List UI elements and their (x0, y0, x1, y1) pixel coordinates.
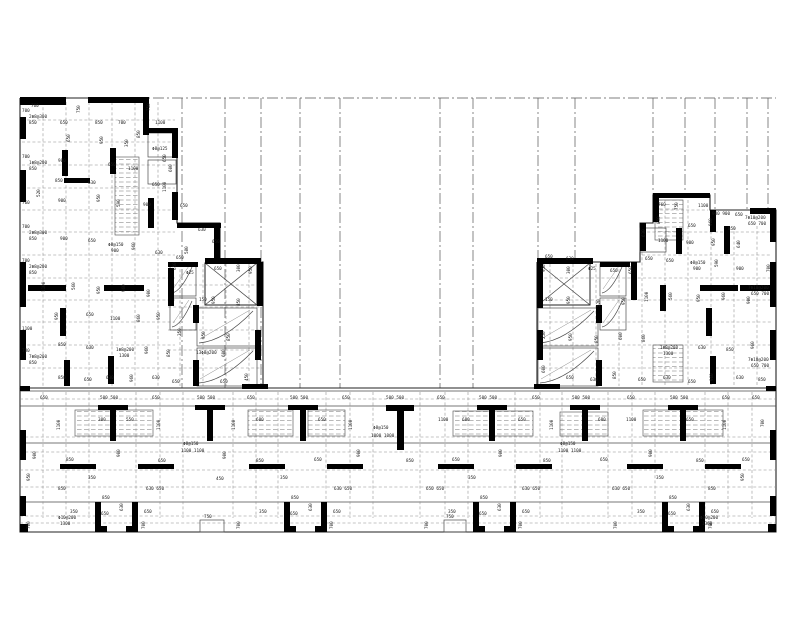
dimension-label: 650 (144, 509, 152, 515)
dimension-label: 630 (497, 503, 503, 511)
dimension-label: 1100 (658, 238, 669, 244)
dimension-label: 900 (648, 449, 654, 457)
wall-segment (20, 386, 30, 391)
dimension-label: 960 (750, 341, 756, 349)
wall-segment (300, 405, 306, 441)
dimension-label: 900 (222, 451, 228, 459)
core-layer (148, 133, 666, 532)
dimension-label: 650 (638, 377, 646, 383)
dimension-label: 1100 (698, 203, 709, 209)
dimension-label: 590 (116, 199, 122, 207)
dimension-label: Φ8@125 (152, 146, 168, 152)
dimension-label: 630 650 (522, 486, 541, 492)
dimension-label: 860 (136, 314, 142, 322)
dimension-label: 1100 (41, 281, 47, 292)
dimension-label: 680 (256, 417, 264, 423)
wall-segment (504, 526, 516, 532)
dimension-label: 590 (714, 259, 720, 267)
dimension-label: 13Φ8@200 (196, 350, 217, 356)
dimension-label: 850 (669, 495, 677, 501)
wall-segment (327, 464, 363, 469)
wall-segment (126, 526, 138, 532)
dimension-label: 1100 (722, 419, 728, 430)
dimension-label: 650 (180, 203, 188, 209)
wall-segment (489, 405, 495, 441)
floor-plan-canvas: 7607506508507007501100850650950350Φ8@125… (0, 0, 800, 640)
dimension-label: 350 (656, 475, 664, 481)
hatched-slab (248, 410, 293, 436)
dimension-label: 860 (641, 334, 647, 342)
dimension-label: 960 (721, 292, 727, 300)
dimension-label: 960 (144, 346, 150, 354)
dimension-label: 650 (152, 182, 160, 188)
dimension-label: 650 (600, 457, 608, 463)
wall-segment (516, 464, 552, 469)
dimension-label: 850 (29, 120, 37, 126)
wall-segment (770, 496, 776, 516)
dimension-label: 950 (26, 473, 32, 481)
dimension-label: 650 650 (426, 486, 445, 492)
wall-segment (680, 405, 686, 441)
dimension-label: 850 (726, 347, 734, 353)
wall-segment (88, 97, 146, 103)
wall-segment (438, 464, 474, 469)
dimension-label: 600 (168, 164, 174, 172)
wall-segment (20, 262, 26, 307)
dimension-label: 650 (88, 238, 96, 244)
dimension-label: 300 (98, 417, 106, 423)
dimension-label: 750 (446, 514, 454, 520)
dimension-label: 900 (356, 449, 362, 457)
dimension-label: 650 (566, 375, 574, 381)
dimension-label: 700 (236, 521, 242, 529)
wall-segment (255, 330, 261, 360)
wall-segment (770, 330, 776, 360)
wall-segment (768, 524, 776, 532)
dimension-label: 250 (541, 331, 547, 339)
dimension-label: 700 (329, 521, 335, 529)
dimension-label: 1Φ8@200 (116, 347, 135, 353)
dimension-label: 350 (259, 509, 267, 515)
dimension-label: 560 (71, 282, 77, 290)
dimension-label: 780 (22, 348, 30, 354)
dimension-label: 900 (686, 240, 694, 246)
dimension-label: 760 (31, 103, 39, 109)
dimension-label: 700 (760, 419, 766, 427)
dimension-label: 350 (637, 509, 645, 515)
dimension-label: 650 (735, 212, 743, 218)
dimension-label: 640 (736, 240, 742, 248)
dimension-label: 650 (711, 509, 719, 515)
dimension-label: 500 500 (290, 395, 309, 401)
dimension-label: 950 (740, 473, 746, 481)
dimension-label: 600 (618, 332, 624, 340)
dimension-label: 600 (541, 365, 547, 373)
stair-run-line (541, 350, 591, 379)
dimension-label: 950 (96, 194, 102, 202)
wall-segment (20, 330, 26, 360)
stair-run-line (540, 311, 594, 343)
dimension-label: 850 (166, 349, 172, 357)
dimension-label: 900 (58, 158, 66, 164)
wall-segment (662, 526, 674, 532)
dimension-label: 900 (146, 289, 152, 297)
dimension-label: 960 (121, 284, 127, 292)
dimension-label: 650 (86, 312, 94, 318)
dimension-label: 850 (406, 458, 414, 464)
dimension-label: 850 (29, 360, 37, 366)
dimension-label: 630 (308, 503, 314, 511)
dimension-label: 850 (656, 216, 662, 224)
dimension-label: 950 (201, 331, 207, 339)
wall-segment (676, 228, 682, 254)
dimension-label: 520 (596, 299, 602, 307)
dimension-label: 750 (674, 202, 680, 210)
dimension-label: 650 (172, 262, 178, 270)
wall-segment (60, 464, 96, 469)
dimension-label: 850 (29, 236, 37, 242)
dimension-label: 750 (146, 103, 152, 111)
wall-segment (64, 360, 70, 386)
dimension-label: 630 (698, 345, 706, 351)
dimension-label: 950 (211, 296, 217, 304)
dimension-label: 630 (119, 503, 125, 511)
dimension-label: 1100 (549, 419, 555, 430)
dimension-label: 650 700 (748, 221, 767, 227)
dimension-label: 900 (111, 248, 119, 254)
dimension-label: Φ25 (186, 270, 194, 276)
dimension-label: 700 (424, 521, 430, 529)
dimension-label: 680 (598, 417, 606, 423)
dimension-label: 350 (280, 475, 288, 481)
wall-segment (284, 526, 296, 532)
dimension-label: 630 (686, 503, 692, 511)
dimension-label: 650 (666, 258, 674, 264)
dimension-label: 900 900 (712, 211, 731, 217)
wall-segment (110, 148, 116, 174)
floor-plan-sheet: 7607506508507007501100850650950350Φ8@125… (0, 0, 800, 640)
dimension-label: 1100 (128, 166, 139, 172)
dimension-label: 1100 1100 (558, 448, 582, 454)
dimension-label: 350 (88, 475, 96, 481)
dimension-label: 960 (708, 218, 714, 226)
wall-segment (700, 285, 738, 291)
dimension-label: 630 650 (146, 486, 165, 492)
wall-segment (770, 214, 776, 242)
wall-segment (60, 308, 66, 336)
dimension-label: 1100 (231, 419, 237, 430)
dimension-label: 700 (22, 154, 30, 160)
wall-segment (172, 130, 178, 158)
wall-segment (257, 262, 263, 306)
stair-flight (538, 308, 598, 346)
dimension-label: 630 (566, 256, 574, 262)
dimension-label: 650 700 (751, 291, 770, 297)
dimension-label: 650 (172, 379, 180, 385)
dimension-label: 850 (708, 486, 716, 492)
dimension-label: 650 (290, 511, 298, 517)
dimension-label: 950 (568, 333, 574, 341)
dimension-label: 900 (746, 296, 752, 304)
dimension-label: 560 (668, 292, 674, 300)
dimension-label: 630 (155, 250, 163, 256)
dimension-label: 700 (766, 264, 772, 272)
dimension-label: 350 (124, 139, 130, 147)
dimension-label: 630 (590, 377, 598, 383)
wall-segment (64, 178, 90, 183)
dimension-label: 650 (152, 395, 160, 401)
wall-segment (20, 170, 26, 202)
dimension-label: 900 (60, 236, 68, 242)
wall-segment (249, 464, 285, 469)
dimension-label: 900 (736, 266, 744, 272)
wall-segment (473, 526, 485, 532)
dimension-label: 650 (437, 395, 445, 401)
dimension-label: 700 (22, 258, 30, 264)
dimension-label: 650 (333, 509, 341, 515)
dimension-label: 900 (58, 198, 66, 204)
dimension-label: 950 (99, 136, 105, 144)
dimension-label: 1100 (22, 326, 33, 332)
stair-outline (538, 308, 598, 346)
dimension-label: 1Φ8@200 (660, 345, 679, 351)
wall-segment (138, 464, 174, 469)
wall-segment (397, 405, 404, 450)
wall-segment (110, 405, 116, 441)
wall-segment (20, 496, 26, 516)
dimension-label: 650 (318, 417, 326, 423)
dimension-label: 900 (498, 449, 504, 457)
dimension-label: 650 (522, 509, 530, 515)
dimension-label: 500 500 (197, 395, 216, 401)
wall-segment (20, 97, 66, 105)
dimension-label: Φ8@150 (560, 441, 576, 447)
dimension-label: 650 (212, 239, 220, 245)
wall-segment (770, 430, 776, 460)
dimension-label: 850 (594, 335, 600, 343)
dimension-label: 500 500 (670, 395, 689, 401)
dimension-label: 850 (29, 270, 37, 276)
dimension-label: 650 (686, 417, 694, 423)
dimension-label: 650 (532, 395, 540, 401)
dimension-label: 650 (545, 254, 553, 260)
dimension-label: 650 (645, 256, 653, 262)
wall-segment (20, 430, 26, 460)
dimension-label: 1100 1100 (181, 448, 205, 454)
dimension-label: 650 (342, 395, 350, 401)
dimension-label: 850 (58, 486, 66, 492)
dimension-label: 630 (86, 345, 94, 351)
dimension-label: 900 (116, 449, 122, 457)
dimension-label: 960 (131, 242, 137, 250)
dimension-label: 650 (108, 162, 116, 168)
dimension-label: 650 (518, 417, 526, 423)
small-room-box (148, 133, 176, 157)
dimension-label: 900 (143, 202, 151, 208)
wall-segment (706, 308, 712, 336)
dimension-label: 650 (627, 395, 635, 401)
dimension-label: 850 (226, 333, 232, 341)
dimension-label: 1100 (162, 181, 168, 192)
dimension-label: 950 (54, 312, 60, 320)
small-room-box (200, 520, 224, 532)
wall-segment (193, 360, 199, 386)
dimension-label: 150 (545, 297, 553, 303)
dimension-label: 700 (22, 108, 30, 114)
dimension-label: 630 (198, 227, 206, 233)
dimension-label: 1Φ8@200 (29, 160, 48, 166)
dimension-label: 1100 (438, 417, 449, 423)
dimension-label: 500 500 (572, 395, 591, 401)
dimension-label: 650 (752, 395, 760, 401)
dimension-label: 630 650 (334, 486, 353, 492)
dimension-label: 550 (126, 417, 134, 423)
dimension-label: 700 (26, 521, 32, 529)
wall-segment (207, 405, 213, 441)
dimension-label: 7Φ10@200 (748, 285, 769, 291)
dimension-label: 950 (248, 266, 254, 274)
dimension-label: 950 (711, 238, 717, 246)
dimension-label: 250 (177, 328, 183, 336)
wall-segment (534, 384, 560, 389)
wall-segment (766, 386, 776, 391)
building-outline (20, 98, 263, 388)
dimension-label: 650 (66, 134, 72, 142)
dimension-label: Φ8@150 (108, 242, 124, 248)
dimension-label: 630 (88, 180, 96, 186)
dimension-label: 1100 (156, 419, 162, 430)
dimension-label: 630 650 (612, 486, 631, 492)
dimension-label: 1300 (702, 521, 713, 527)
dimension-label: 500 500 (100, 395, 119, 401)
dimension-label: 500 500 (479, 395, 498, 401)
small-room-box (444, 520, 466, 532)
dimension-label: 850 (696, 458, 704, 464)
dimension-label: 1100 (155, 120, 166, 126)
hatched-slab (308, 410, 345, 436)
dimension-label: 1300 (60, 521, 71, 527)
dimension-label: 850 (758, 377, 766, 383)
dimension-label: 650 700 (751, 363, 770, 369)
dimension-label: 650 (668, 511, 676, 517)
dimension-label: 650 (610, 268, 618, 274)
dimension-label: 850 (291, 495, 299, 501)
wall-segment (653, 193, 710, 198)
stair-run-line (541, 310, 591, 339)
dimension-label: 850 (136, 130, 142, 138)
dimension-label: 760 (22, 200, 30, 206)
dimension-label: 650 (162, 154, 168, 162)
dimension-label: 650 (314, 457, 322, 463)
dimension-label: 700 (141, 521, 147, 529)
dimension-label: 2Φ8@200 (29, 264, 48, 270)
dimension-label: 850 (480, 495, 488, 501)
dimension-label: 630 (663, 375, 671, 381)
dimension-label: 1100 (626, 417, 637, 423)
wall-segment (242, 384, 268, 389)
dimension-label: 7Φ10@200 (748, 357, 769, 363)
dimension-label: 1300 (663, 351, 674, 357)
wall-segment (168, 268, 174, 306)
dimension-label: 520 (36, 189, 42, 197)
dimension-label: 960 (129, 374, 135, 382)
dimension-label: 650 (722, 395, 730, 401)
dimension-label: 650 (60, 120, 68, 126)
dimension-label: 2Φ8@300 (29, 230, 48, 236)
dimension-label: 950 (541, 264, 547, 272)
dimension-label: 1100 (644, 291, 650, 302)
wall-segment (315, 526, 327, 532)
dimension-label: 650 (479, 511, 487, 517)
dimension-label: 650 (688, 379, 696, 385)
dimension-label: 950 (696, 294, 702, 302)
dimension-label: 1100 (110, 316, 121, 322)
wall-segment (193, 305, 199, 323)
dimension-label: 650 (220, 379, 228, 385)
dimension-label: 850 (543, 458, 551, 464)
wall-segment (750, 208, 776, 214)
dimension-label: 950 (566, 296, 572, 304)
dimension-label: 630 (152, 375, 160, 381)
wall-segment (205, 258, 261, 264)
dimension-label: 960 (709, 373, 715, 381)
dimension-label: 650 (40, 395, 48, 401)
dimension-label: 850 (55, 178, 63, 184)
dimension-label: Φ10@200 (700, 515, 719, 521)
dimension-label: Φ8@150 (183, 441, 199, 447)
dimension-label: 850 (102, 495, 110, 501)
wall-segment (705, 464, 741, 469)
dimension-label: 650 (452, 457, 460, 463)
dimension-label: 850 (58, 375, 66, 381)
dimension-label: 900 (32, 451, 38, 459)
dimension-label: 850 (58, 342, 66, 348)
dimension-label: 7Φ8@200 (29, 354, 48, 360)
dimension-label: Φ8@150 (690, 260, 706, 266)
dimension-label: 900 (693, 266, 701, 272)
dimension-label: 450 (216, 476, 224, 482)
dimension-label: 630 (736, 375, 744, 381)
dimension-label: 650 (628, 266, 634, 274)
dimension-label: 650 (101, 511, 109, 517)
dimension-label: 850 (236, 298, 242, 306)
wall-segment (582, 405, 588, 441)
dimension-label: 300 (566, 266, 572, 274)
dimension-label: 500 500 (386, 395, 405, 401)
dimension-label: 650 (84, 377, 92, 383)
dimension-label: 150 (199, 297, 207, 303)
dimension-label: 600 (221, 349, 227, 357)
dimension-label: 300 (236, 264, 242, 272)
dimension-label: 950 (621, 297, 627, 305)
dimension-label: 1100 (56, 419, 62, 430)
dimension-label: 7Φ10@200 (745, 215, 766, 221)
dimension-label: 650 (158, 458, 166, 464)
dimension-label: 630 (641, 229, 647, 237)
dimension-label: 1000 1000 (371, 433, 395, 439)
dimension-label: 850 (612, 371, 618, 379)
dimension-label: 850 (66, 457, 74, 463)
dimension-label: 630 (106, 375, 114, 381)
dimension-label: 750 (204, 514, 212, 520)
dimension-label: Φ10@200 (58, 515, 77, 521)
dimension-label: 760 (658, 202, 666, 208)
dimension-label: 700 (613, 521, 619, 529)
wall-segment (660, 285, 666, 311)
dimension-label: 650 (742, 457, 750, 463)
wall-segment (627, 464, 663, 469)
dimension-label: 700 (518, 521, 524, 529)
